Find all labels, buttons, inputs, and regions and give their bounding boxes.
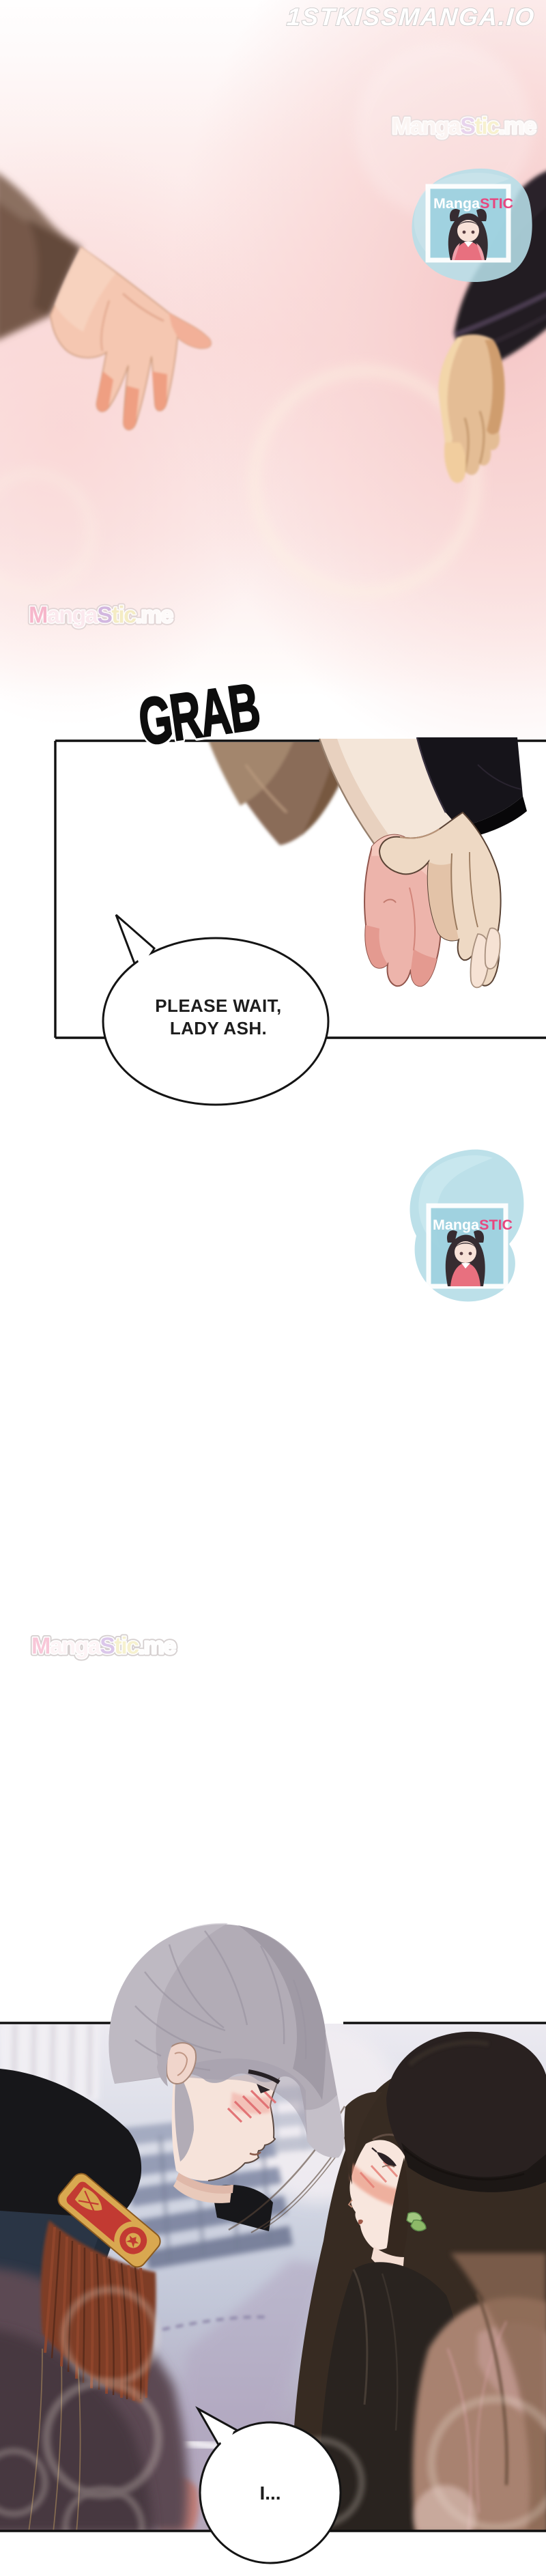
svg-text:MangaSTIC: MangaSTIC <box>433 195 513 212</box>
svg-text:I...: I... <box>259 2482 281 2504</box>
svg-text:LADY ASH.: LADY ASH. <box>170 1018 267 1038</box>
svg-text:MangaSTIC: MangaSTIC <box>433 1217 513 1233</box>
svg-text:MangaStic.me: MangaStic.me <box>31 1633 175 1659</box>
svg-text:1STKISSMANGA.IO: 1STKISSMANGA.IO <box>286 3 536 31</box>
svg-text:MangaStic.me: MangaStic.me <box>29 602 173 628</box>
svg-text:PLEASE WAIT,: PLEASE WAIT, <box>155 995 281 1016</box>
svg-text:MangaStic.me: MangaStic.me <box>392 113 536 139</box>
